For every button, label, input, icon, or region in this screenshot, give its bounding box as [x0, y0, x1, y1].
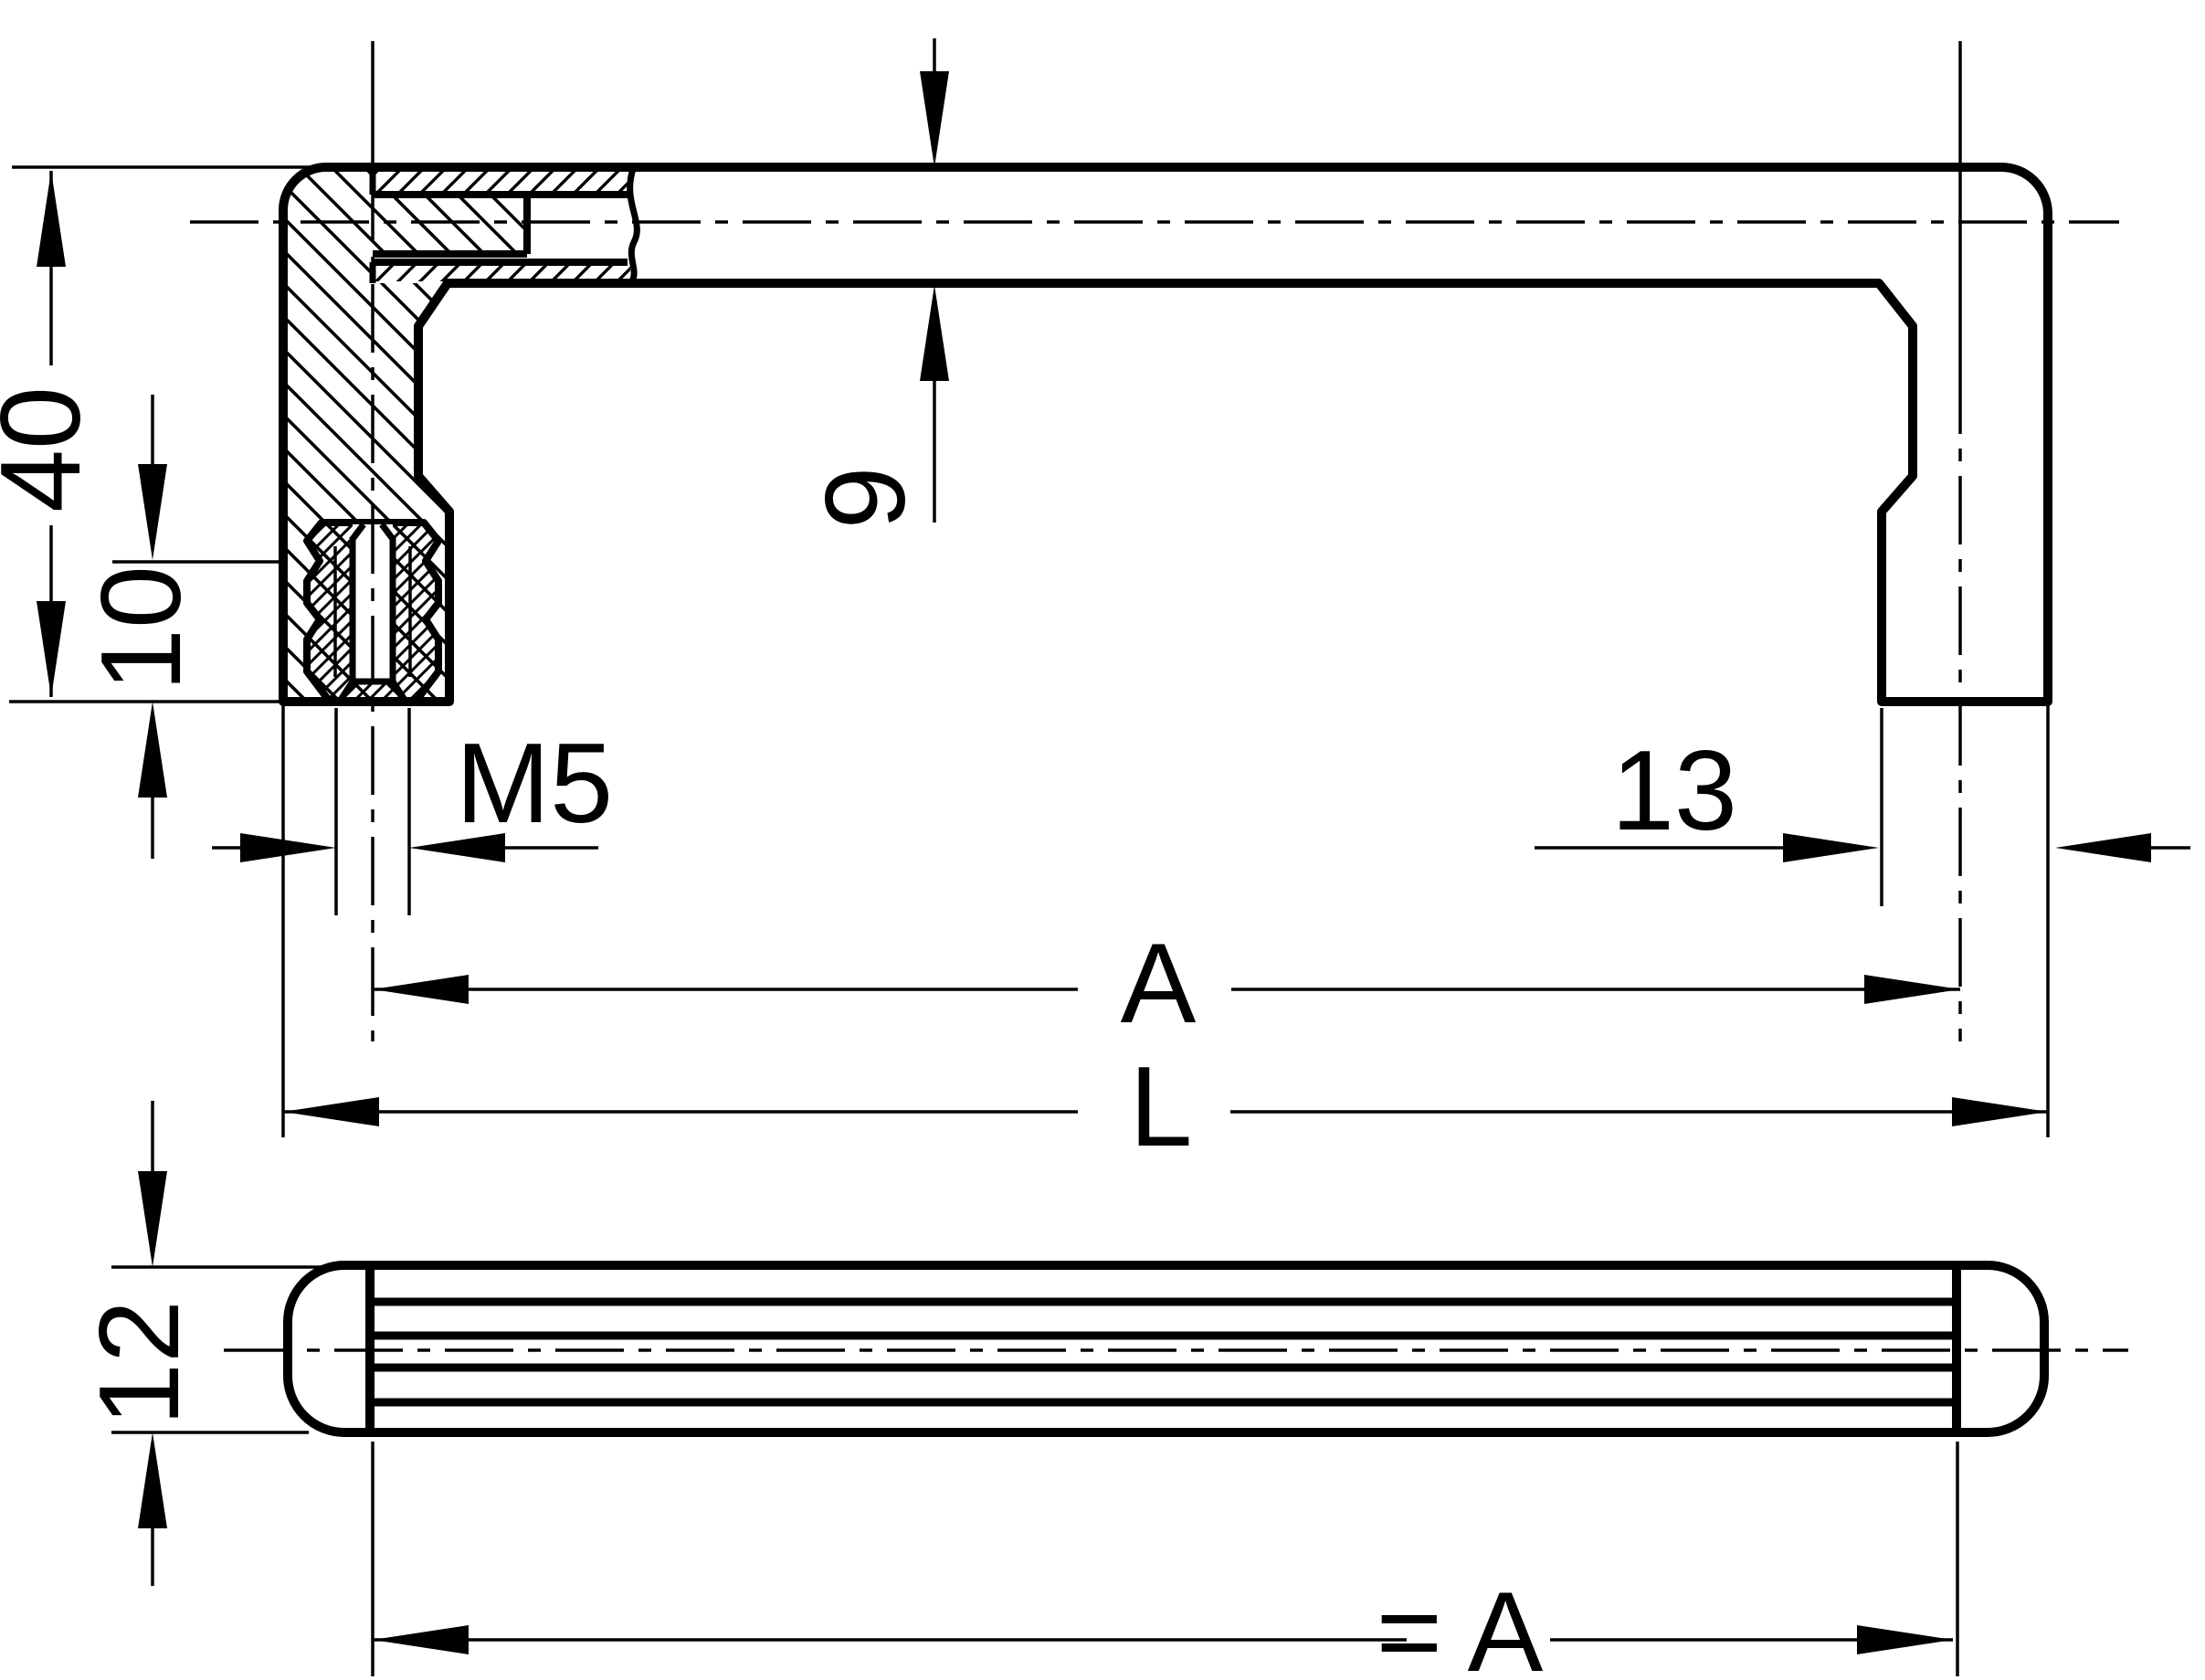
bottom-view [224, 1265, 2128, 1432]
dim-foot-width-13: 13 [1535, 728, 2190, 862]
dim-40-label: 40 [0, 386, 104, 512]
dim-overall-length-l: L [283, 1044, 2048, 1170]
dim-13-label: 13 [1611, 728, 1737, 854]
front-view [190, 41, 2119, 1041]
drawing-canvas: 40 10 9 M5 13 A [0, 0, 2205, 1680]
dim-l-label: L [1130, 1044, 1193, 1170]
dim-hole-spacing-a: A [373, 921, 1960, 1047]
dim-10-label: 10 [79, 565, 205, 692]
dim-thread-m5: M5 [212, 721, 613, 862]
dim-12-label: 12 [77, 1300, 203, 1426]
dim-m5-label: M5 [456, 721, 613, 847]
dim-eqa-label: = A [1377, 1569, 1544, 1680]
dim-equals-a: = A [373, 1442, 1957, 1680]
handle-outline [283, 167, 2048, 702]
dim-9-label: 9 [803, 467, 929, 530]
dim-a-label: A [1121, 921, 1197, 1047]
bar-top-wall-hatch [373, 169, 630, 193]
section-break-line [630, 169, 638, 281]
technical-drawing: 40 10 9 M5 13 A [0, 0, 2205, 1680]
